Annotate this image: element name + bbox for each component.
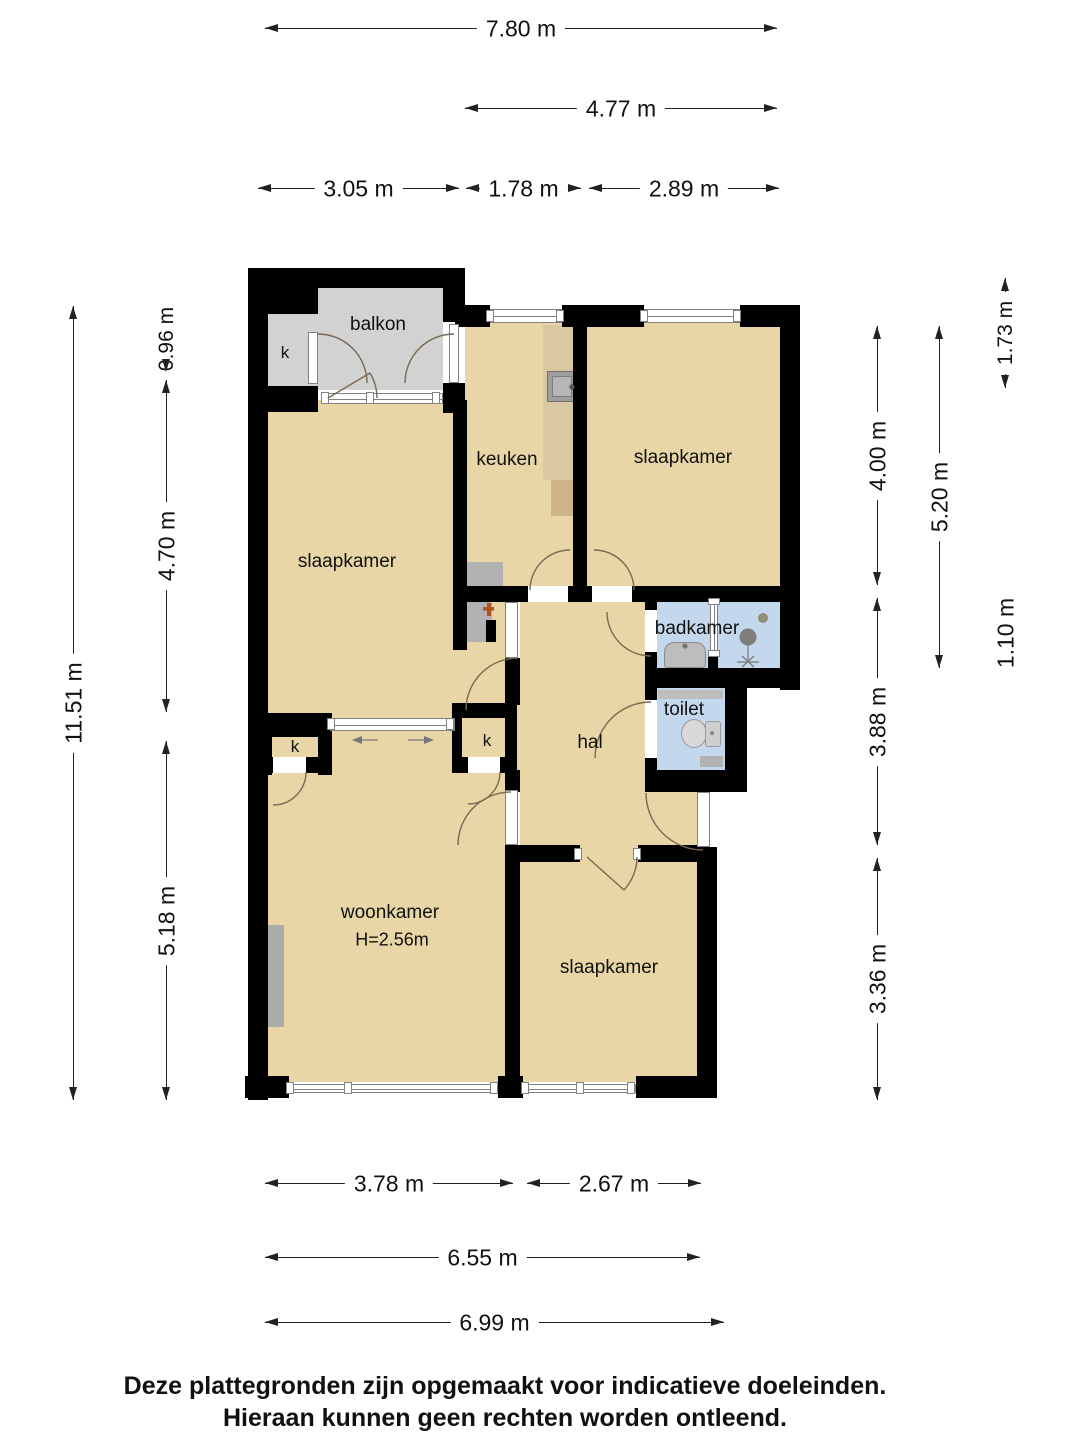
floor-plan-page: balkon k keuken slaapkamer slaapkamer ba… — [0, 0, 1080, 1440]
dimension-label: 3.88 m — [865, 677, 892, 765]
window-tick — [708, 650, 720, 657]
window-tick — [733, 310, 741, 322]
wall — [452, 757, 468, 773]
room-label-toilet: toilet — [664, 699, 704, 721]
dimension-label: 3.36 m — [865, 935, 892, 1023]
wall — [645, 688, 657, 700]
door-leaf — [697, 792, 710, 847]
wall — [248, 288, 318, 314]
floor-hal-entry — [645, 790, 697, 850]
dimension-label: 4.70 m — [154, 502, 181, 590]
wall — [568, 586, 592, 602]
wall — [505, 770, 520, 792]
window-tick — [327, 718, 335, 730]
dimension-bottom-699: 6.99 m — [265, 1322, 724, 1323]
wall — [708, 656, 718, 668]
room-label-closet-balkon: k — [281, 343, 290, 363]
window — [288, 1084, 498, 1093]
wall — [248, 268, 465, 288]
door-gap — [592, 586, 632, 602]
wall — [636, 1076, 717, 1098]
wall — [258, 757, 273, 773]
wall — [505, 658, 520, 705]
wall — [245, 1076, 289, 1098]
dimension-top-305: 3.05 m — [258, 188, 459, 189]
dimension-left-470: 4.70 m — [166, 380, 167, 712]
window-tick — [344, 1082, 352, 1094]
dimension-right-173: 1.73 m — [1005, 278, 1006, 388]
room-label-slaapkamer-bottom: slaapkamer — [560, 957, 658, 979]
door-gap — [273, 757, 306, 773]
door-gap — [528, 586, 568, 602]
wall — [486, 620, 496, 642]
dimension-left-1151: 11.51 m — [73, 306, 74, 1100]
toilet-step-icon — [700, 756, 723, 767]
window-tick — [640, 310, 648, 322]
dimension-top-178: 1.78 m — [466, 188, 581, 189]
dimension-label: 4.77 m — [577, 96, 665, 123]
door-gap — [468, 757, 500, 773]
wall — [248, 386, 318, 412]
door-gap — [645, 700, 657, 758]
wall — [453, 400, 467, 650]
dimension-label: 6.99 m — [450, 1310, 538, 1337]
window-tick — [321, 392, 329, 404]
window-tick — [490, 1082, 498, 1094]
window — [490, 309, 562, 323]
dimension-label: 11.51 m — [61, 653, 88, 752]
wall — [498, 1076, 523, 1098]
dimension-label: 3.05 m — [314, 176, 402, 203]
window-tick — [633, 848, 641, 860]
toilet-tank-icon — [705, 721, 721, 747]
wall — [697, 847, 717, 1098]
window-tick — [576, 1082, 584, 1094]
toilet-shelf-icon — [658, 690, 723, 699]
window-tick — [556, 310, 564, 322]
door-leaf — [505, 790, 518, 845]
dimension-label: 5.18 m — [154, 876, 181, 964]
dimension-right-336: 3.36 m — [877, 858, 878, 1100]
dimension-bottom-655: 6.55 m — [265, 1257, 700, 1258]
wall — [455, 305, 490, 327]
wall — [520, 845, 580, 862]
dimension-top-477: 4.77 m — [465, 108, 777, 109]
room-label-ceiling-height: H=2.56m — [355, 930, 429, 951]
door-leaf — [308, 332, 318, 384]
dimension-label: 1.78 m — [479, 176, 567, 203]
dimension-right-388: 3.88 m — [877, 598, 878, 845]
dimension-left-518: 5.18 m — [166, 741, 167, 1100]
room-label-keuken: keuken — [476, 449, 537, 471]
floor-hal — [508, 600, 648, 850]
dimension-label: 6.55 m — [438, 1245, 526, 1272]
wall — [638, 845, 700, 862]
dimension-right-520: 5.20 m — [939, 326, 940, 668]
dimension-label: 0.96 m — [155, 298, 179, 380]
dimension-label: 7.80 m — [477, 16, 565, 43]
wall — [573, 322, 587, 590]
dimension-bottom-267: 2.67 m — [527, 1183, 701, 1184]
wall — [645, 602, 657, 610]
wall — [780, 305, 800, 690]
disclaimer-line-1: Deze plattegronden zijn opgemaakt voor i… — [0, 1372, 1010, 1401]
room-label-woonkamer: woonkamer — [341, 902, 439, 924]
window-tick — [446, 718, 454, 730]
door-leaf — [505, 602, 518, 658]
dimension-top-780: 7.80 m — [265, 28, 777, 29]
dimension-right-400: 4.00 m — [877, 326, 878, 585]
dimension-label: 1.73 m — [994, 292, 1018, 374]
wall — [505, 590, 520, 602]
window-tick — [627, 1082, 635, 1094]
window-tick — [708, 598, 720, 605]
kitchen-sink-basin-icon — [552, 376, 572, 397]
dimension-label: 5.20 m — [927, 453, 954, 541]
window-tick — [366, 392, 374, 404]
dimension-top-289: 2.89 m — [589, 188, 779, 189]
room-label-balkon: balkon — [350, 314, 406, 336]
window-tick — [432, 392, 440, 404]
window — [325, 393, 443, 404]
room-label-badkamer: badkamer — [655, 618, 740, 640]
window — [644, 309, 740, 323]
room-label-slaapkamer-top: slaapkamer — [634, 447, 732, 469]
kitchen-counter-icon — [543, 325, 575, 480]
room-label-hal: hal — [577, 732, 602, 754]
dimension-label: 2.89 m — [640, 176, 728, 203]
window-tick — [521, 1082, 529, 1094]
dimension-label: 4.00 m — [865, 411, 892, 499]
wall — [645, 770, 747, 792]
wall — [650, 668, 798, 688]
wall — [306, 757, 332, 773]
window-tick — [486, 310, 494, 322]
room-label-closet-left: k — [291, 737, 300, 757]
toilet-bowl-icon — [681, 719, 707, 748]
bath-sink-icon — [664, 642, 706, 668]
wall — [725, 688, 747, 772]
room-label-closet-center: k — [483, 731, 492, 751]
radiator-icon — [267, 925, 284, 1027]
wall — [505, 845, 520, 1098]
disclaimer-line-2: Hieraan kunnen geen rechten worden ontle… — [0, 1404, 1010, 1433]
dimension-bottom-378: 3.78 m — [265, 1183, 513, 1184]
room-label-slaapkamer-left: slaapkamer — [298, 551, 396, 573]
door-leaf — [449, 324, 459, 383]
sliding-door-track — [330, 718, 455, 731]
window-tick — [286, 1082, 294, 1094]
dimension-left-096: 0.96 m — [166, 306, 167, 372]
dimension-right-110: 1.10 m — [993, 598, 1020, 668]
dimension-label: 3.78 m — [345, 1171, 433, 1198]
window-tick — [574, 848, 582, 860]
dimension-label: 2.67 m — [570, 1171, 658, 1198]
